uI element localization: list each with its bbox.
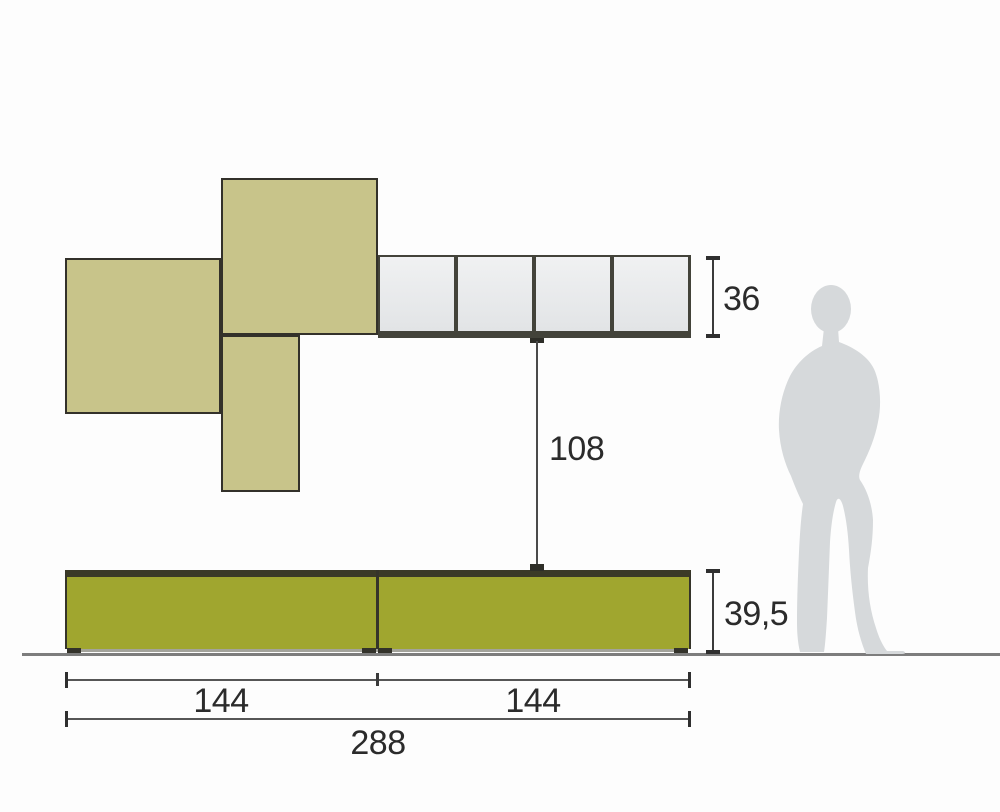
dim-line-gap-height bbox=[536, 341, 538, 567]
dim-tick bbox=[688, 711, 691, 727]
upper-cabinet-row bbox=[378, 255, 691, 338]
dim-label-gap-height: 108 bbox=[549, 432, 604, 466]
dim-tick bbox=[65, 672, 68, 688]
upper-cabinet-panel bbox=[536, 257, 610, 331]
tall-cabinet-left-block bbox=[65, 258, 221, 414]
upper-cabinet-panel bbox=[614, 257, 688, 331]
dim-label-left-width: 144 bbox=[181, 684, 261, 718]
dim-label-total-width: 288 bbox=[338, 726, 418, 760]
dim-line-upper-height bbox=[712, 258, 714, 337]
dim-tick bbox=[376, 673, 379, 686]
upper-cabinet-panel bbox=[458, 257, 532, 331]
dim-attach-tick bbox=[530, 564, 544, 571]
person-silhouette-icon bbox=[770, 280, 920, 655]
dim-cap bbox=[706, 256, 720, 260]
dim-label-upper-height: 36 bbox=[723, 282, 760, 316]
upper-cabinet-panel bbox=[380, 257, 454, 331]
dim-tick bbox=[65, 711, 68, 727]
dim-cap bbox=[706, 334, 720, 338]
dim-line-total-width bbox=[66, 718, 690, 720]
dim-label-right-width: 144 bbox=[493, 684, 573, 718]
tall-cabinet-lower-block bbox=[221, 335, 300, 492]
dimension-diagram: 36 108 39,5 144 144 288 bbox=[0, 0, 1000, 812]
dim-cap bbox=[706, 650, 720, 654]
dim-line-base-height bbox=[712, 571, 714, 653]
dim-tick bbox=[688, 672, 691, 688]
dim-cap bbox=[706, 569, 720, 573]
base-cabinet-divider bbox=[376, 570, 379, 649]
tall-cabinet-top-block bbox=[221, 178, 378, 335]
